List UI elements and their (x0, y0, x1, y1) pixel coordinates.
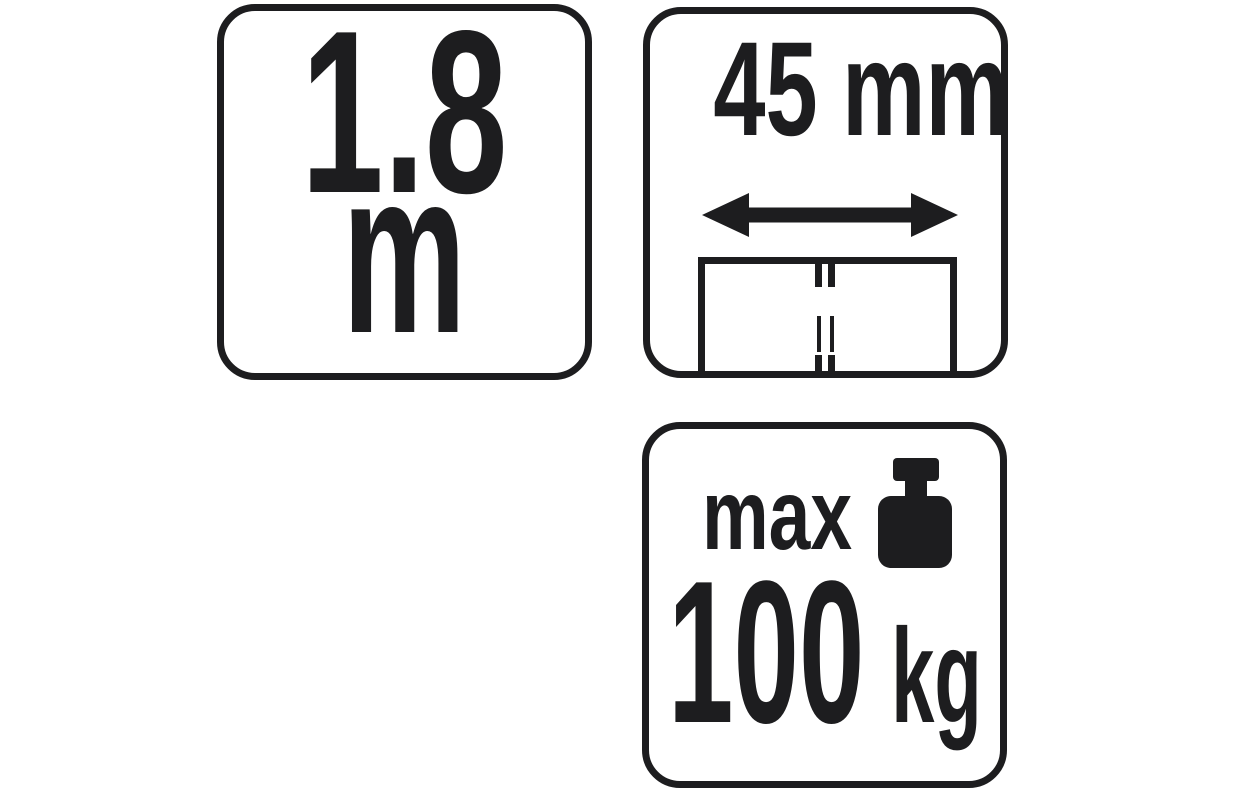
seam-dash (830, 316, 834, 352)
pictogram-canvas: 1.8 m 45mm max (0, 0, 1234, 800)
seam-dash (828, 355, 835, 371)
seam-dash (815, 355, 822, 371)
strap-cross-section-icon (698, 257, 957, 371)
load-value-text: 100 (668, 551, 864, 754)
width-label: 45mm (650, 23, 1001, 157)
load-row: 100 kg (668, 551, 982, 754)
badge-length: 1.8 m (217, 4, 592, 380)
badge-width: 45mm (643, 7, 1008, 378)
seam-dash (828, 264, 835, 287)
badge-load: max 100 kg (642, 422, 1007, 788)
seam-dash (815, 264, 822, 287)
width-unit-text: mm (842, 15, 1008, 164)
length-unit-text: m (343, 137, 467, 369)
width-value-text: 45 (713, 15, 817, 164)
length-unit: m (224, 137, 585, 369)
seam-dash (817, 316, 821, 352)
double-arrow-icon (702, 193, 958, 237)
load-unit-text: kg (891, 610, 982, 744)
